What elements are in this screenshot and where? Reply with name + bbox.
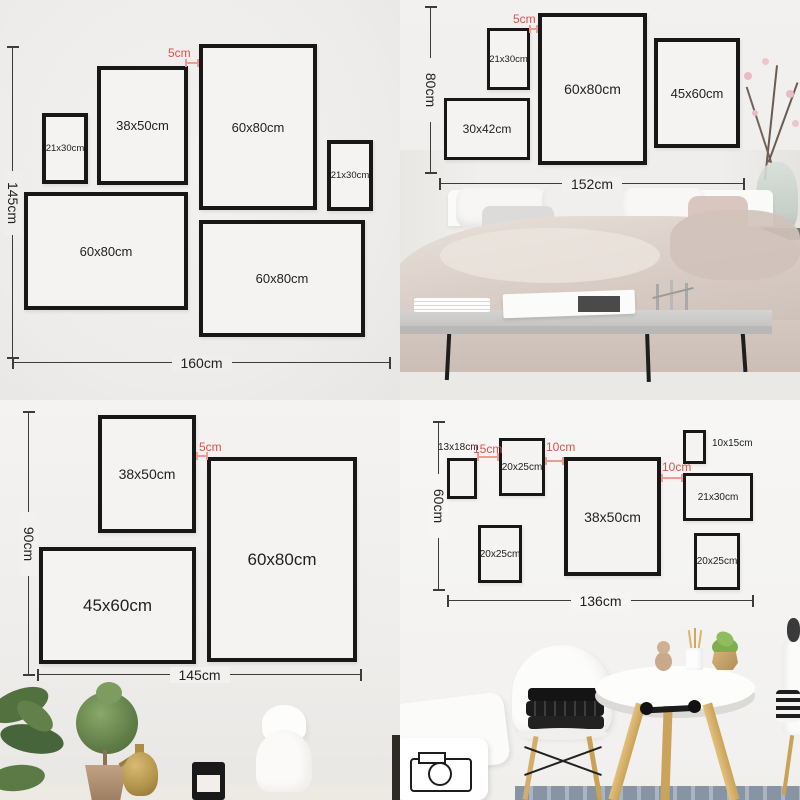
gap-dimension-line: [545, 460, 564, 462]
teddy-head: [657, 641, 670, 654]
frame-38x50: 38x50cm: [564, 457, 661, 576]
height-dimension-arrow: 90cm: [28, 412, 29, 675]
candlestick: [685, 283, 688, 310]
dining-photo: [400, 610, 800, 800]
frame-size-label: 20x25cm: [502, 462, 543, 473]
pencil-stick: [698, 630, 702, 648]
width-dimension-label: 145cm: [169, 667, 229, 683]
folded-sweater: [528, 688, 602, 701]
frame-20x25: 20x25cm: [478, 525, 522, 583]
folded-sweater: [526, 701, 604, 716]
height-dimension-label: 145cm: [4, 171, 22, 235]
topiary-foliage-tuft: [96, 682, 122, 704]
frame-size-label: 20x25cm: [480, 549, 521, 560]
cup: [686, 648, 703, 670]
frame-size-label: 21x30cm: [331, 170, 370, 181]
open-book-photo: [578, 296, 620, 312]
gap-dimension-line: [196, 455, 208, 457]
width-dimension-label: 136cm: [570, 593, 630, 609]
console-photo: [0, 680, 400, 800]
frame-size-label: 38x50cm: [119, 466, 176, 482]
frame-size-label: 45x60cm: [671, 86, 724, 101]
frame-layout-collage: 145cm 21x30cm 38x50cm 60x80cm 21x30cm 60…: [0, 0, 800, 800]
teddy-body: [655, 652, 672, 671]
gap-dimension-line: [529, 28, 538, 30]
table-hub-bolt: [688, 700, 701, 713]
frame-21x30: 21x30cm: [42, 113, 88, 184]
succulent-pot: [712, 652, 738, 670]
pencil-stick: [694, 628, 696, 648]
blossom: [786, 90, 794, 98]
table-top: [595, 666, 755, 710]
frame-21x30: 21x30cm: [327, 140, 373, 211]
frame-45x60: 45x60cm: [39, 547, 196, 664]
hanging-pom: [787, 618, 800, 642]
black-jar-label: [197, 775, 220, 792]
frame-size-label: 21x30cm: [46, 143, 85, 154]
frame-60x80-landscape: 60x80cm: [199, 220, 365, 337]
frame-30x42: 30x42cm: [444, 98, 530, 160]
candlestick: [670, 280, 673, 310]
book-stack: [414, 298, 490, 312]
frame-size-label: 30x42cm: [463, 122, 512, 136]
width-dimension-label: 160cm: [171, 355, 231, 371]
chair-seat-edge: [516, 728, 608, 740]
watering-can-body: [123, 752, 158, 796]
frame-size-label: 60x80cm: [248, 550, 317, 570]
blossom: [744, 72, 752, 80]
bench-edge: [400, 326, 772, 334]
frame-size-label: 45x60cm: [83, 596, 152, 616]
frame-size-label: 60x80cm: [232, 120, 285, 135]
white-vase-body: [256, 730, 312, 792]
frame-size-label: 60x80cm: [80, 244, 133, 259]
frame-size-label: 38x50cm: [584, 509, 641, 525]
camera-doodle-lens: [428, 762, 452, 786]
camera-doodle-top: [418, 752, 446, 764]
frame-size-label-10x15: 10x15cm: [712, 438, 753, 449]
frame-size-label: 21x30cm: [698, 492, 739, 503]
gap-dimension-line: [185, 62, 199, 64]
width-dimension-label: 152cm: [562, 176, 622, 192]
frame-21x30-landscape: 21x30cm: [683, 473, 753, 521]
frame-20x25: 20x25cm: [694, 533, 740, 590]
frame-60x80: 60x80cm: [538, 13, 647, 165]
frame-60x80: 60x80cm: [207, 457, 357, 662]
rug: [515, 786, 800, 800]
table-hub-bolt: [640, 702, 653, 715]
width-dimension-arrow: 152cm: [440, 183, 744, 184]
pencil-stick: [688, 630, 692, 648]
width-dimension-arrow: 136cm: [448, 600, 753, 601]
gap-dimension-line: [477, 456, 499, 458]
width-dimension-arrow: 160cm: [13, 362, 390, 363]
frame-10x15: [683, 430, 706, 464]
gap-dimension-label: 5cm: [199, 440, 222, 454]
frame-38x50: 38x50cm: [98, 415, 196, 533]
frame-size-label: 38x50cm: [116, 118, 169, 133]
side-chair-cushion: [776, 690, 800, 722]
quadrant-layout-160x145: 145cm 21x30cm 38x50cm 60x80cm 21x30cm 60…: [0, 0, 400, 400]
frame-size-label: 21x30cm: [489, 54, 528, 65]
quadrant-layout-145x90-console: 90cm 38x50cm 60x80cm 45x60cm 5cm 145cm: [0, 400, 400, 800]
blossom: [752, 110, 758, 116]
height-dimension-arrow: 145cm: [12, 47, 13, 358]
quadrant-layout-136x60-dining: 60cm 13x18cm 20x25cm 38x50cm 10x15cm 21x…: [400, 400, 800, 800]
frame-size-label: 20x25cm: [697, 556, 738, 567]
frame-45x60: 45x60cm: [654, 38, 740, 148]
floor: [400, 372, 800, 400]
duvet-highlight: [440, 228, 660, 283]
height-dimension-arrow: 80cm: [430, 7, 431, 173]
height-dimension-label: 90cm: [20, 512, 38, 576]
gap-dimension-label: 10cm: [546, 440, 575, 454]
height-dimension-label: 80cm: [422, 58, 440, 122]
gap-dimension-label: 5cm: [513, 12, 536, 26]
frame-20x25: 20x25cm: [499, 438, 545, 496]
frame-13x18: [447, 458, 477, 499]
topiary-pot: [85, 765, 127, 800]
frame-21x30: 21x30cm: [487, 28, 530, 90]
frame-60x80-portrait: 60x80cm: [199, 44, 317, 210]
quadrant-layout-152x80-bedroom: 80cm 21x30cm 30x42cm 60x80cm 45x60cm 5cm…: [400, 0, 800, 400]
blossom: [792, 120, 799, 127]
height-dimension-label: 60cm: [430, 474, 448, 538]
frame-38x50: 38x50cm: [97, 66, 188, 185]
blossom: [762, 58, 769, 65]
width-dimension-arrow: 145cm: [38, 674, 361, 675]
gap-dimension-label: 10cm: [662, 460, 691, 474]
dark-frame-edge: [392, 735, 400, 800]
duvet-throw: [670, 210, 800, 280]
gap-dimension-line: [661, 477, 683, 479]
gap-dimension-label: 5cm: [168, 46, 191, 60]
frame-size-label: 60x80cm: [564, 81, 621, 97]
frame-60x80-landscape: 60x80cm: [24, 192, 188, 310]
frame-size-label: 60x80cm: [256, 271, 309, 286]
